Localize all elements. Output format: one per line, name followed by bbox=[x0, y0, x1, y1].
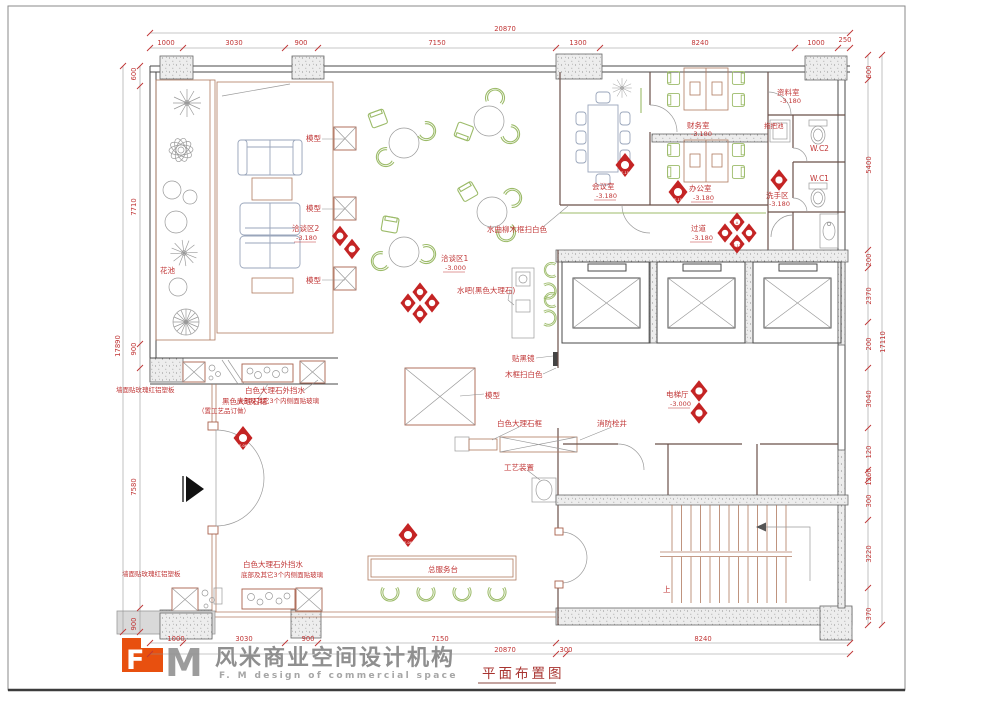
dim-top-6: 1000 bbox=[807, 39, 824, 47]
dim-left-4: 900 bbox=[130, 618, 138, 631]
level-corridor: -3.180 bbox=[692, 234, 713, 242]
stair-block bbox=[555, 444, 848, 603]
dim-bottom-5: 8240 bbox=[694, 635, 711, 643]
label-service-desk: 总服务台 bbox=[428, 564, 458, 574]
hall-seating bbox=[368, 87, 525, 273]
door-arc bbox=[793, 148, 807, 162]
label-black-mirror: 贴黑镜 bbox=[512, 353, 535, 363]
dim-left-2: 900 bbox=[130, 343, 138, 356]
label-hydrant: 消防栓井 bbox=[597, 418, 627, 428]
logo-letter-f: F bbox=[126, 645, 144, 676]
level-elev-hall: -3.000 bbox=[670, 400, 691, 408]
dim-right-10: 370 bbox=[865, 608, 873, 621]
office-desks bbox=[668, 140, 745, 182]
flower-bed bbox=[156, 80, 215, 340]
label-wc2: W.C2 bbox=[810, 144, 829, 153]
elevator-1 bbox=[562, 262, 650, 343]
note-marble-water-1a: 白色大理石外挡水 bbox=[245, 385, 305, 395]
level-negotiation-2: -3.180 bbox=[296, 234, 317, 242]
label-corridor: 过道 bbox=[691, 223, 706, 233]
label-model-3: 模型 bbox=[306, 275, 321, 285]
note-skirt-2: （置工艺品订做） bbox=[198, 406, 250, 415]
water-bar bbox=[512, 268, 556, 338]
dim-bottom-2: 900 bbox=[302, 635, 315, 643]
marker-letter: B bbox=[624, 156, 627, 161]
note-wall-panel-2: 墙面贴玫瑰红铝塑板 bbox=[122, 569, 181, 578]
dim-left-total: 17890 bbox=[114, 335, 122, 357]
floor-plan: B E-15 A E-15 A E-12 E-06 E-06 bbox=[0, 0, 1000, 707]
label-wood-white: 木框扫白色 bbox=[505, 369, 543, 379]
column bbox=[805, 56, 847, 80]
dim-left-0: 600 bbox=[130, 68, 138, 81]
dim-top-1: 3030 bbox=[225, 39, 242, 47]
logo-letter-m: M bbox=[165, 641, 203, 685]
entry-arrow-icon bbox=[183, 476, 204, 502]
label-wash: 洗手区 bbox=[766, 190, 789, 200]
marker-ref: E-06 bbox=[404, 541, 413, 545]
dim-bottom-0: 1000 bbox=[167, 635, 184, 643]
dim-top-3: 7150 bbox=[428, 39, 445, 47]
drawing-title-text: 平面布置图 bbox=[482, 666, 565, 682]
dim-left-1: 7710 bbox=[130, 198, 138, 215]
label-marble-frame: 白色大理石框 bbox=[497, 418, 542, 428]
drawing-title: 平面布置图 bbox=[478, 666, 565, 683]
model-box bbox=[334, 127, 356, 150]
logo: F M 风米商业空间设计机构 F. M design of commercial… bbox=[117, 611, 458, 685]
coffee-table bbox=[252, 278, 293, 293]
level-negotiation-1: -3.000 bbox=[445, 264, 466, 272]
marker-ref: E-15 bbox=[621, 171, 629, 175]
wash-basin bbox=[820, 214, 838, 248]
level-meeting: -3.180 bbox=[596, 192, 617, 200]
column bbox=[292, 56, 324, 79]
dim-top-total: 20870 bbox=[494, 25, 516, 33]
label-meeting: 会议室 bbox=[592, 181, 615, 191]
art-installation bbox=[532, 478, 556, 502]
marker-letter: A bbox=[677, 183, 680, 188]
coffee-table bbox=[252, 178, 292, 200]
elevator-3 bbox=[753, 262, 841, 343]
dimension-text: 20870 1000 3030 900 7150 1300 8240 1000 … bbox=[114, 25, 887, 654]
label-archive: 资料室 bbox=[777, 87, 800, 97]
dim-top-5: 8240 bbox=[691, 39, 708, 47]
label-finance: 财务室 bbox=[687, 120, 710, 130]
finance-desks bbox=[668, 68, 745, 110]
dim-bottom-total: 20870 bbox=[494, 646, 516, 654]
center-model-box bbox=[405, 368, 475, 425]
logo-cn-text: 风米商业空间设计机构 bbox=[215, 645, 455, 671]
dim-bottom-3: 7150 bbox=[431, 635, 448, 643]
dim-top-4: 1300 bbox=[569, 39, 586, 47]
elevation-marker: E-06 bbox=[234, 426, 253, 450]
marker-ref: E-06 bbox=[239, 444, 248, 448]
model-box bbox=[334, 267, 356, 290]
dim-right-total: 17110 bbox=[879, 331, 887, 353]
label-model-center: 模型 bbox=[485, 390, 500, 400]
level-office: -3.180 bbox=[693, 194, 714, 202]
service-desk bbox=[368, 556, 516, 601]
level-finance: -3.180 bbox=[691, 130, 712, 138]
label-negotiation-1: 洽谈区1 bbox=[441, 253, 468, 263]
toilet-wc1 bbox=[809, 183, 827, 207]
dim-top-0: 1000 bbox=[157, 39, 174, 47]
dim-right-1: 5400 bbox=[865, 156, 873, 173]
dim-right-6: 120 bbox=[865, 446, 873, 459]
label-elev-hall: 电梯厅 bbox=[666, 389, 689, 399]
elevation-marker-compass bbox=[400, 282, 439, 323]
stairs bbox=[660, 505, 810, 603]
level-wash: -3.180 bbox=[769, 200, 790, 208]
door-arc bbox=[771, 215, 793, 237]
dim-bottom-1: 3030 bbox=[235, 635, 252, 643]
note-marble-water-2b: 底部及其它3个内侧面贴玻璃 bbox=[241, 570, 324, 579]
dim-top-7: 250 bbox=[839, 36, 852, 44]
logo-en-text: F. M design of commercial space bbox=[219, 671, 458, 681]
note-wall-panel-1: 墙面贴玫瑰红铝塑板 bbox=[116, 385, 175, 394]
dim-right-2: 200 bbox=[865, 254, 873, 267]
sheet-border bbox=[8, 6, 905, 690]
label-mop: 拖把池 bbox=[764, 121, 784, 130]
door-arc bbox=[618, 444, 644, 470]
sofa bbox=[238, 140, 302, 175]
label-model-2: 模型 bbox=[306, 203, 321, 213]
column bbox=[160, 56, 193, 79]
dim-right-5: 3040 bbox=[865, 390, 873, 407]
dim-right-3: 2370 bbox=[865, 287, 873, 304]
label-stairs-up: 上 bbox=[663, 585, 671, 594]
dim-right-8: 300 bbox=[865, 495, 873, 508]
drawing-sheet: B E-15 A E-15 A E-12 E-06 E-06 bbox=[0, 0, 1000, 707]
label-flower-bed: 花池 bbox=[160, 265, 175, 275]
elevation-marker-compass: A E-12 bbox=[717, 212, 756, 253]
elevator-2 bbox=[657, 262, 745, 343]
dim-right-7: 1260 bbox=[865, 468, 873, 485]
elevation-marker: E-06 bbox=[399, 523, 418, 547]
label-art: 工艺装置 bbox=[504, 462, 534, 472]
marker-ref: E-15 bbox=[674, 198, 682, 202]
dim-top-2: 900 bbox=[295, 39, 308, 47]
door-arc bbox=[622, 205, 650, 233]
model-boxes bbox=[322, 127, 356, 290]
label-ash-frame: 水曲柳木框扫白色 bbox=[487, 224, 547, 234]
leader-lines bbox=[258, 206, 612, 480]
stair-double-door bbox=[555, 528, 587, 588]
label-negotiation-2: 洽谈区2 bbox=[292, 223, 319, 233]
label-office: 办公室 bbox=[689, 183, 712, 193]
dim-bottom-4: 300 bbox=[560, 646, 573, 654]
toilet-wc2 bbox=[809, 120, 827, 144]
marker-ref: E-12 bbox=[733, 244, 741, 248]
model-box bbox=[334, 197, 356, 220]
dim-left-3: 7580 bbox=[130, 478, 138, 495]
sofa bbox=[240, 236, 300, 268]
sofa bbox=[240, 203, 300, 235]
label-wc1: W.C1 bbox=[810, 174, 829, 183]
black-mirror-strip bbox=[553, 352, 558, 366]
dim-right-0: 600 bbox=[865, 66, 873, 79]
note-skirt-1: 黑色大理石裙 bbox=[222, 396, 267, 406]
dim-right-4: 200 bbox=[865, 338, 873, 351]
label-water-bar: 水吧(黑色大理石) bbox=[457, 285, 515, 295]
door-arc bbox=[793, 198, 807, 212]
marble-frame-piece bbox=[455, 437, 497, 451]
column bbox=[556, 54, 602, 79]
elevator-block bbox=[544, 250, 848, 343]
level-archive: -3.180 bbox=[780, 97, 801, 105]
elevation-marker: A E-15 bbox=[669, 180, 688, 204]
label-model-1: 模型 bbox=[306, 133, 321, 143]
note-marble-water-2a: 白色大理石外挡水 bbox=[243, 559, 303, 569]
dim-right-9: 3220 bbox=[865, 545, 873, 562]
door-arc bbox=[650, 105, 677, 132]
